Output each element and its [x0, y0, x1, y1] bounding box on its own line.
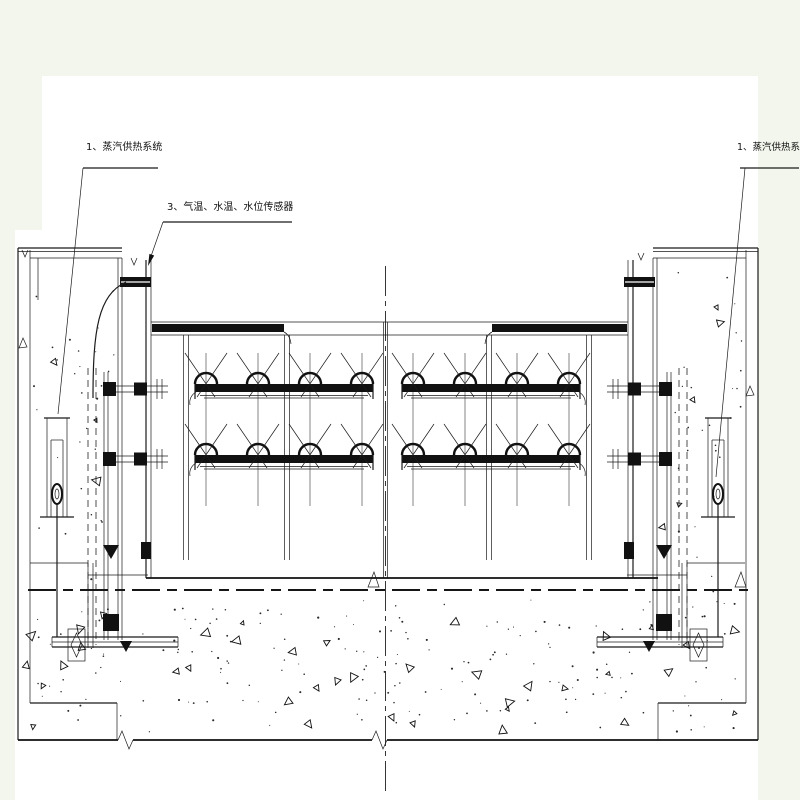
- seal-block: [624, 542, 634, 559]
- label-text: 1、蒸汽供热系统: [737, 141, 800, 153]
- seal-block: [141, 542, 151, 559]
- drawing-viewport: 1、蒸汽供热系统 3、气温、水温、水位传感器 1、蒸汽供热系统: [0, 0, 800, 800]
- seal-block: [103, 614, 119, 631]
- seal-block: [656, 614, 672, 631]
- label-text: 1、蒸汽供热系统: [86, 140, 162, 153]
- label-text: 3、气温、水温、水位传感器: [167, 200, 293, 213]
- paper-sheet-left-extension: [15, 230, 43, 800]
- gate-elevation-drawing: 1、蒸汽供热系统 3、气温、水温、水位传感器 1、蒸汽供热系统: [0, 0, 800, 800]
- paper-sheet: [42, 76, 758, 800]
